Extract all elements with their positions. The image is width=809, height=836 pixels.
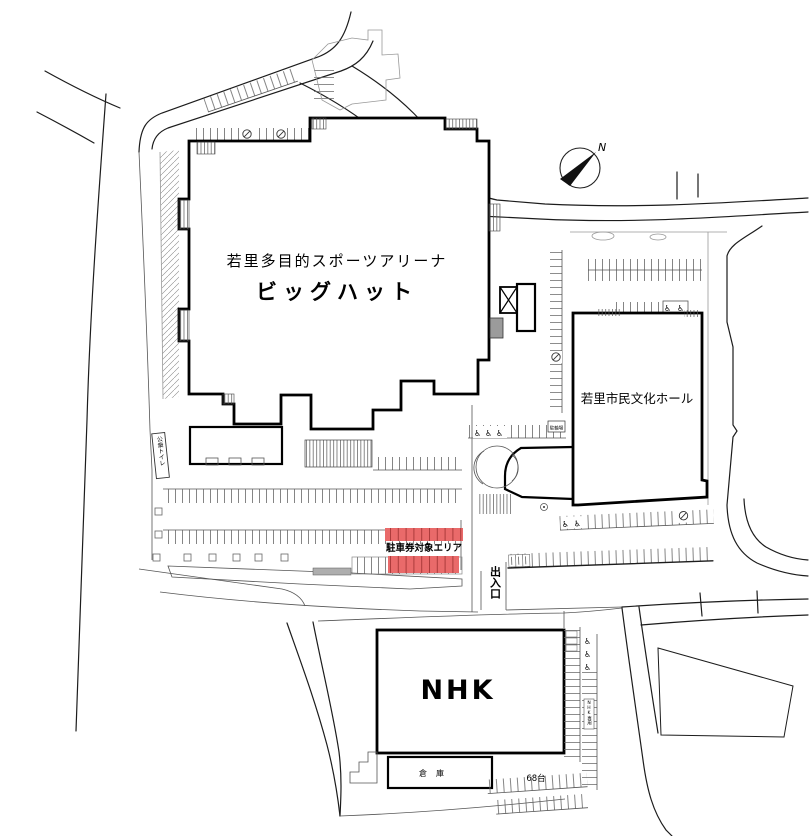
site-map-page: 若里多目的スポーツアリーナ ビッグハット ♿ ♿ 若里市民文化ホール xyxy=(0,0,809,836)
east-annex xyxy=(517,284,535,331)
nhk-reserved-stall: NHK専用 xyxy=(584,699,594,729)
hall-canopy xyxy=(505,447,573,499)
stairs xyxy=(489,204,500,231)
north-arrow-icon xyxy=(560,152,596,186)
site-map: 若里多目的スポーツアリーナ ビッグハット ♿ ♿ 若里市民文化ホール xyxy=(0,0,809,836)
no-parking-icon xyxy=(552,353,560,361)
nhk-label: NHK xyxy=(420,675,495,706)
no-parking-icon xyxy=(243,130,251,138)
loading-strip xyxy=(313,568,351,575)
crosswalk xyxy=(477,494,511,514)
wheelchair-icon: ♿ xyxy=(496,429,503,438)
stairs xyxy=(312,118,326,129)
compass-north-label: N xyxy=(598,141,606,154)
gate-label: 出入口 xyxy=(489,565,502,600)
south-annex xyxy=(190,427,282,464)
service-box xyxy=(490,318,503,338)
main-stairs xyxy=(305,440,372,467)
public-toilet: 公衆トイレ xyxy=(152,432,170,478)
stairs xyxy=(446,119,477,129)
bicycle-parking-label: 駐輪場 xyxy=(550,425,564,432)
no-parking-icon xyxy=(679,511,688,520)
arena-name-line1: 若里多目的スポーツアリーナ xyxy=(227,252,448,270)
stairs xyxy=(197,142,215,154)
culture-hall-label: 若里市民文化ホール xyxy=(581,391,694,406)
nhk-group: NHK 倉庫 ♿ ♿ ♿ NHK専用 68台 xyxy=(350,611,597,815)
parking-ticket-area-label: 駐車券対象エリア xyxy=(386,542,463,554)
stairs xyxy=(179,310,189,341)
steps xyxy=(350,752,377,783)
wheelchair-icon: ♿ xyxy=(584,663,591,672)
parking-ticket-area-lower xyxy=(388,556,459,573)
stairs xyxy=(223,394,234,404)
nhk-reserved-label: NHK専用 xyxy=(586,700,592,726)
arena-building: 若里多目的スポーツアリーナ ビッグハット xyxy=(179,118,535,467)
stairs xyxy=(179,200,189,229)
west-slope-hatch xyxy=(160,150,179,399)
wheelchair-icon: ♿ xyxy=(485,429,492,438)
arena-name-line2: ビッグハット xyxy=(256,280,418,304)
warehouse-label: 倉庫 xyxy=(419,768,453,778)
wheelchair-icon: ♿ xyxy=(584,650,591,659)
wheelchair-icon: ♿ xyxy=(562,520,570,529)
parking-ticket-area-upper xyxy=(385,528,463,541)
no-parking-icon xyxy=(277,130,285,138)
wheelchair-icon: ♿ xyxy=(584,637,591,646)
wheelchair-icon: ♿ xyxy=(474,429,481,438)
culture-hall-building xyxy=(573,313,707,505)
culture-hall-group: 若里市民文化ホール ♿ ♿ xyxy=(474,309,714,530)
wheelchair-icon: ♿ xyxy=(574,519,582,528)
compass: N xyxy=(560,141,606,188)
